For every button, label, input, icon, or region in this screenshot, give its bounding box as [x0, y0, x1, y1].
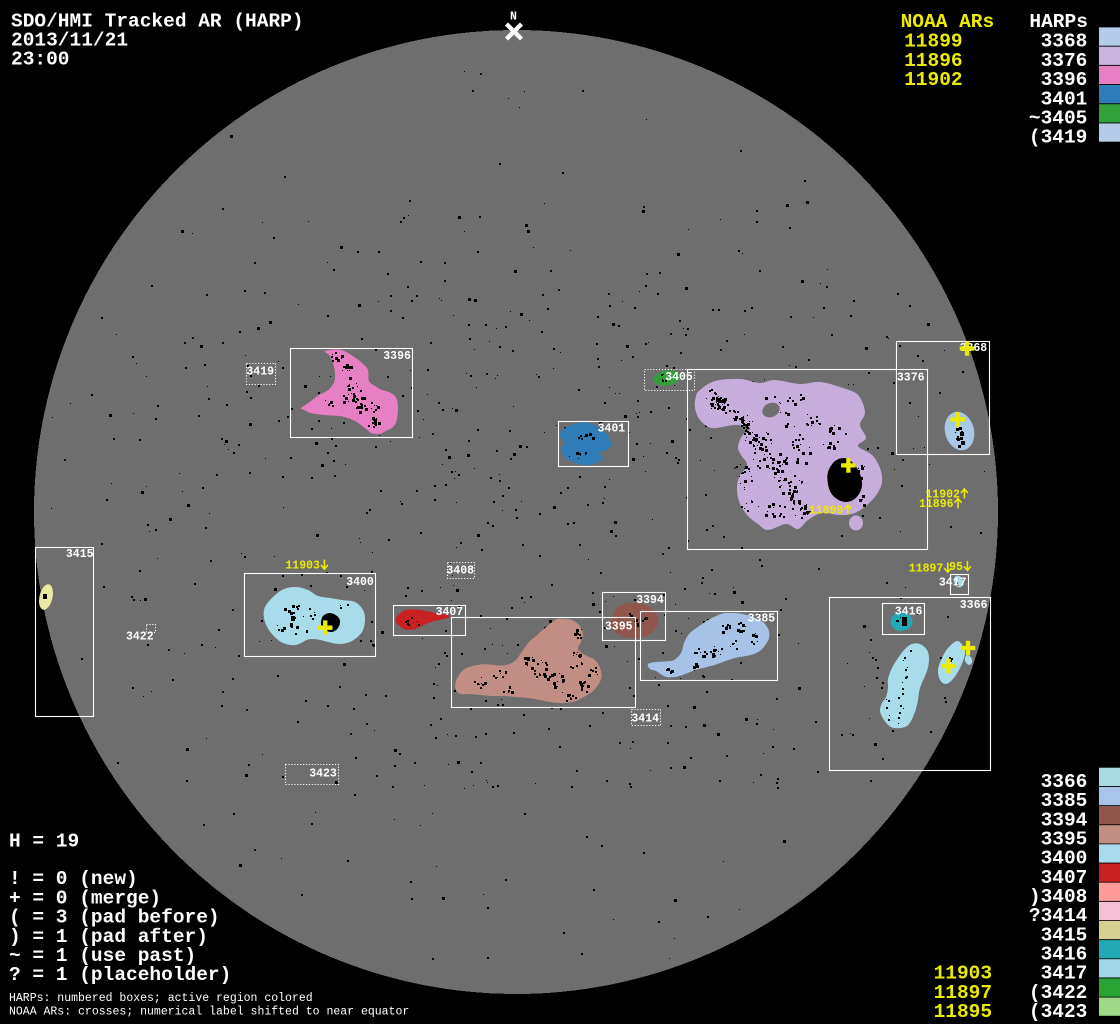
svg-text:3405: 3405	[665, 371, 693, 384]
svg-text:3401: 3401	[598, 423, 626, 436]
svg-text:NOAA ARs: crosses; numerical l: NOAA ARs: crosses; numerical label shift…	[9, 1005, 409, 1018]
svg-text:3414: 3414	[631, 713, 659, 726]
svg-text:11902: 11902	[904, 69, 963, 91]
svg-text:11895: 11895	[934, 1001, 993, 1023]
svg-text:(3419: (3419	[1029, 127, 1088, 149]
svg-text:(3423: (3423	[1029, 1001, 1088, 1023]
svg-text:3415: 3415	[66, 548, 94, 561]
svg-text:3400: 3400	[346, 576, 374, 589]
svg-text:3417: 3417	[939, 576, 967, 589]
svg-text:3396: 3396	[383, 350, 411, 363]
svg-text:3408: 3408	[446, 565, 474, 578]
svg-text:NOAA ARs: NOAA ARs	[901, 11, 995, 33]
svg-text:3416: 3416	[895, 605, 923, 618]
svg-text:3407: 3407	[436, 606, 464, 619]
svg-text:95: 95	[949, 561, 963, 574]
svg-text:HARPs: HARPs	[1029, 11, 1088, 33]
svg-text:23:00: 23:00	[11, 49, 70, 71]
svg-text:3366: 3366	[960, 599, 988, 612]
svg-text:3423: 3423	[309, 768, 337, 781]
svg-text:3376: 3376	[897, 372, 925, 385]
svg-text:11897: 11897	[909, 563, 944, 576]
svg-text:3395: 3395	[605, 620, 633, 633]
svg-text:H = 19: H = 19	[9, 831, 79, 853]
svg-text:3385: 3385	[748, 612, 776, 625]
svg-text:11896: 11896	[919, 498, 954, 511]
svg-text:3422: 3422	[126, 630, 154, 643]
svg-text:3394: 3394	[636, 594, 664, 607]
svg-text:11899: 11899	[809, 505, 844, 518]
svg-text:3419: 3419	[246, 365, 274, 378]
svg-text:HARPs: numbered boxes; active: HARPs: numbered boxes; active region col…	[9, 992, 313, 1005]
svg-text:? = 1 (placeholder): ? = 1 (placeholder)	[9, 964, 231, 986]
svg-text:11903: 11903	[285, 560, 320, 573]
svg-text:N: N	[510, 11, 517, 24]
